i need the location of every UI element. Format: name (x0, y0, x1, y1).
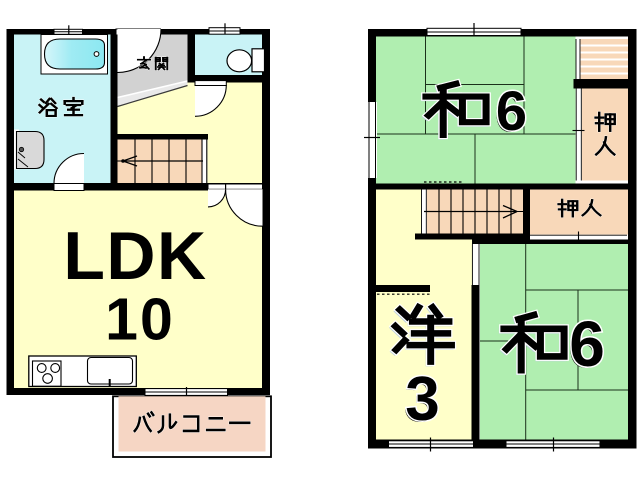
svg-text:6: 6 (569, 308, 605, 380)
svg-text:LDK: LDK (63, 218, 207, 294)
svg-text:3: 3 (405, 365, 439, 434)
svg-text:10: 10 (105, 287, 175, 353)
svg-text:6: 6 (496, 79, 527, 142)
